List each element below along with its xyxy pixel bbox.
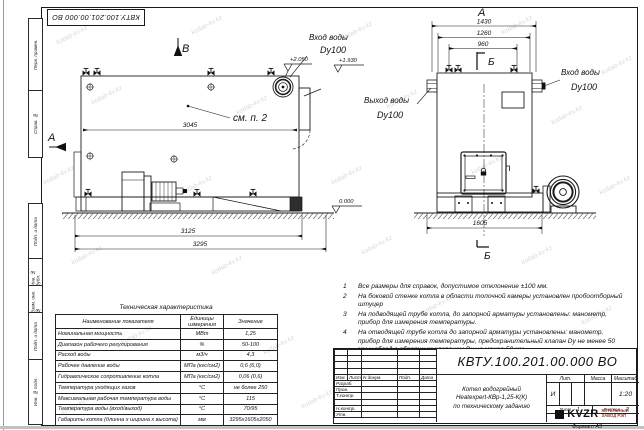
dim-1260: 1260 — [477, 30, 492, 37]
spec-cell: МПа (кгс/см2) — [181, 361, 224, 372]
note-text: Все размеры для справок, допустимое откл… — [358, 283, 625, 292]
spec-cell: Максимальная рабочая температура воды — [56, 393, 181, 404]
valve-icon — [83, 68, 90, 75]
note-text: На подводящей трубе котла, до запорной а… — [358, 311, 625, 328]
view-letter-a-side: А — [47, 132, 55, 144]
format-label: Формат А3 — [572, 424, 602, 430]
outlet-dn: Dy100 — [377, 110, 403, 120]
spec-cell: Гидравлическое сопротивление котла — [56, 372, 181, 383]
spec-cell: МВт — [181, 329, 224, 340]
note-text: На боковой стенке котла в области топочн… — [358, 293, 625, 310]
section-letter-bottom: Б — [484, 251, 491, 262]
lifting-eye-icon — [170, 155, 178, 163]
inlet-flange-front-icon — [532, 80, 546, 92]
mass-value — [585, 383, 612, 406]
note-item: 3 На подводящей трубе котла, до запорной… — [343, 311, 625, 328]
spec-row: Максимальная рабочая температура воды°С1… — [56, 393, 278, 404]
door-lock-icon — [481, 168, 486, 175]
side-inlet-dn: Dy100 — [320, 45, 346, 55]
spec-cell: Диапазон рабочего регулирования — [56, 339, 181, 350]
spec-cell: не более 250 — [224, 382, 278, 393]
note-number: 2 — [343, 293, 358, 310]
dim-3045: 3045 — [183, 122, 198, 129]
spec-row: Диапазон рабочего регулирования%50-100 — [56, 339, 278, 350]
front-inlet-dn: Dy100 — [571, 82, 597, 92]
inlet-flange-icon — [273, 77, 293, 97]
rev-header: Лист — [348, 374, 362, 380]
spec-cell: 50-100 — [224, 339, 278, 350]
mass-header: Масса — [585, 375, 612, 383]
section-mark-bottom — [477, 240, 489, 247]
doc-description-line: Heatexpert-КВр-1,25-К(К) — [456, 394, 527, 403]
spec-row: Расход водым3/ч4,3 — [56, 350, 278, 361]
elevation-mark-top — [284, 64, 312, 77]
lifting-eye-icon — [207, 83, 215, 91]
spec-table: Наименование показателя Единицы измерени… — [55, 314, 278, 426]
top-doc-number-stamp: КВТУ.100.201.00.000 ВО — [47, 9, 145, 26]
skid-and-burner — [76, 172, 302, 211]
spec-cell: 3295х1605х2050 — [224, 415, 278, 426]
drawing-sheet: kotlab-kv.kzkotlab-kv.kzkotlab-kv.kzkotl… — [0, 0, 644, 430]
manufacturer-logo: KVZR КОТЕЛЬНЫЙ ЗАВОД РЭП — [546, 406, 638, 422]
front-inlet-label: Вход воды — [561, 68, 600, 77]
view-letter-a-front: А — [477, 7, 485, 19]
spec-row: Габариты котла (длинна х ширина х высота… — [56, 415, 278, 426]
valve-icon — [446, 65, 453, 72]
spec-cell: °С — [181, 404, 224, 415]
doc-description: Котел водогрейный Heatexpert-КВр-1,25-К(… — [436, 375, 546, 422]
spec-cell: м3/ч — [181, 350, 224, 361]
side-view — [49, 38, 364, 252]
outlet-flange-icon — [427, 80, 437, 92]
spec-cell: Рабочее давление воды — [56, 361, 181, 372]
section-mark-top — [477, 52, 485, 70]
spec-row: Температура воды (вход/выход)°С70/95 — [56, 404, 278, 415]
dim-1430: 1430 — [477, 19, 492, 26]
spec-cell: % — [181, 339, 224, 350]
logo-subtitle: КОТЕЛЬНЫЙ ЗАВОД РЭП — [601, 409, 628, 418]
note-item: 2 На боковой стенке котла в области топо… — [343, 293, 625, 310]
margin-stamp-podp-data-2: Подп. и дата — [28, 312, 43, 361]
spec-row: Температура уходящих газов°Сне более 250 — [56, 382, 278, 393]
elev-1930: +1.930 — [339, 58, 358, 64]
furnace-door — [461, 152, 510, 194]
notes-list: 1 Все размеры для справок, допустимое от… — [343, 283, 625, 356]
scale-header: Масштаб — [612, 375, 639, 383]
elevation-mark-ground — [332, 206, 362, 213]
spec-row: Рабочее давление водыМПа (кгс/см2)0,6 (6… — [56, 361, 278, 372]
spec-cell: Температура уходящих газов — [56, 382, 181, 393]
front-base — [437, 193, 543, 212]
note-number: 1 — [343, 283, 358, 292]
lit-cell-3 — [572, 383, 585, 406]
margin-stamp-perv-primen: Перв. примен. — [28, 18, 43, 92]
title-block: Изм. Лист N докум. Подп. Дата Разраб. Пр… — [333, 348, 637, 424]
logo-subtitle-line: ЗАВОД РЭП — [601, 414, 628, 419]
valve-icon — [511, 65, 518, 72]
spec-row: Гидравлическое сопротивление котлаМПа (к… — [56, 372, 278, 383]
sig-label: Утв. — [335, 411, 362, 417]
valve-icon — [268, 68, 275, 75]
spec-cell: 0,6 (6,0) — [224, 361, 278, 372]
spec-cell: Температура воды (вход/выход) — [56, 404, 181, 415]
doc-description-line: по техническому заданию — [453, 403, 529, 412]
logo-mark-icon — [555, 410, 564, 419]
top-doc-number-text: КВТУ.100.201.00.000 ВО — [52, 13, 140, 22]
outlet-label: Выход воды — [364, 96, 409, 105]
spec-cell: МПа (кгс/см2) — [181, 372, 224, 383]
spec-cell: °С — [181, 393, 224, 404]
spec-row: Номинальная мощностьМВт1,25 — [56, 329, 278, 340]
view-letter-b: В — [182, 43, 189, 55]
fan-icon — [543, 176, 579, 213]
lit-header: Лит. — [547, 375, 585, 383]
valve-icon — [85, 189, 92, 196]
spec-cell: °С — [181, 382, 224, 393]
spec-cell: Габариты котла (длинна х ширина х высота… — [56, 415, 181, 426]
spec-cell: 4,3 — [224, 350, 278, 361]
note-item: 1 Все размеры для справок, допустимое от… — [343, 283, 625, 292]
spec-table-title: Техническая характеристика — [55, 304, 277, 311]
section-letter-top: Б — [488, 57, 495, 68]
spec-cell: 70/95 — [224, 404, 278, 415]
margin-stamp-podp-data-1: Подп. и дата — [28, 203, 43, 260]
lifting-eye-icon — [86, 152, 94, 160]
scale-value: 1:20 — [612, 383, 639, 406]
elev-0000: 0.000 — [339, 199, 354, 205]
valve-icon — [194, 189, 201, 196]
dim-3295: 3295 — [193, 241, 208, 248]
margin-stamp-inv-dubl: Инв. № дубл. — [28, 258, 43, 287]
spec-header-row: Наименование показателя Единицы измерени… — [56, 315, 278, 329]
lit-cell-2 — [560, 383, 572, 406]
valve-icon — [94, 68, 101, 75]
spec-header: Единицы измерения — [181, 315, 224, 329]
lit-value: И — [547, 383, 560, 406]
side-inlet-label: Вход воды — [309, 33, 348, 42]
rev-header: Изм. — [335, 374, 348, 380]
note-number: 3 — [343, 311, 358, 328]
margin-stamp-sprav-no: Справ. № — [28, 90, 43, 158]
doc-description-line: Котел водогрейный — [462, 386, 521, 395]
spec-cell: 115 — [224, 393, 278, 404]
spec-cell: мм — [181, 415, 224, 426]
revision-table: Изм. Лист N докум. Подп. Дата Разраб. Пр… — [334, 349, 437, 418]
flue-outlet — [291, 88, 321, 149]
sig-row: Утв. — [335, 411, 437, 417]
spec-cell: Расход воды — [56, 350, 181, 361]
spec-cell: Номинальная мощность — [56, 329, 181, 340]
front-view — [414, 21, 596, 247]
dim-3125: 3125 — [181, 228, 196, 235]
valve-icon — [533, 186, 540, 193]
lifting-eye-icon — [86, 83, 94, 91]
valve-icon — [455, 65, 462, 72]
margin-stamp-vzam-inv: Взам. инв. № — [28, 285, 43, 314]
elev-2050: +2.050 — [290, 57, 309, 63]
margin-stamp-inv-podl: Инв. № подл. — [28, 359, 43, 425]
burner-motor-icon — [152, 182, 187, 201]
doc-number: КВТУ.100.201.00.000 ВО — [436, 349, 638, 375]
dim-1605: 1605 — [473, 220, 488, 227]
spec-header: Наименование показателя — [56, 315, 181, 329]
valve-icon — [208, 68, 215, 75]
spec-cell: 0,06 (0,6) — [224, 372, 278, 383]
callout-see-item-2: см. п. 2 — [233, 113, 267, 124]
dim-960: 960 — [478, 41, 489, 48]
valve-icon — [250, 189, 257, 196]
spec-header: Значение — [224, 315, 278, 329]
spec-table-block: Техническая характеристика Наименование … — [55, 304, 277, 426]
spec-cell: 1,25 — [224, 329, 278, 340]
logo-text: KVZR — [567, 408, 598, 420]
elevation-mark-pipe — [334, 65, 364, 72]
